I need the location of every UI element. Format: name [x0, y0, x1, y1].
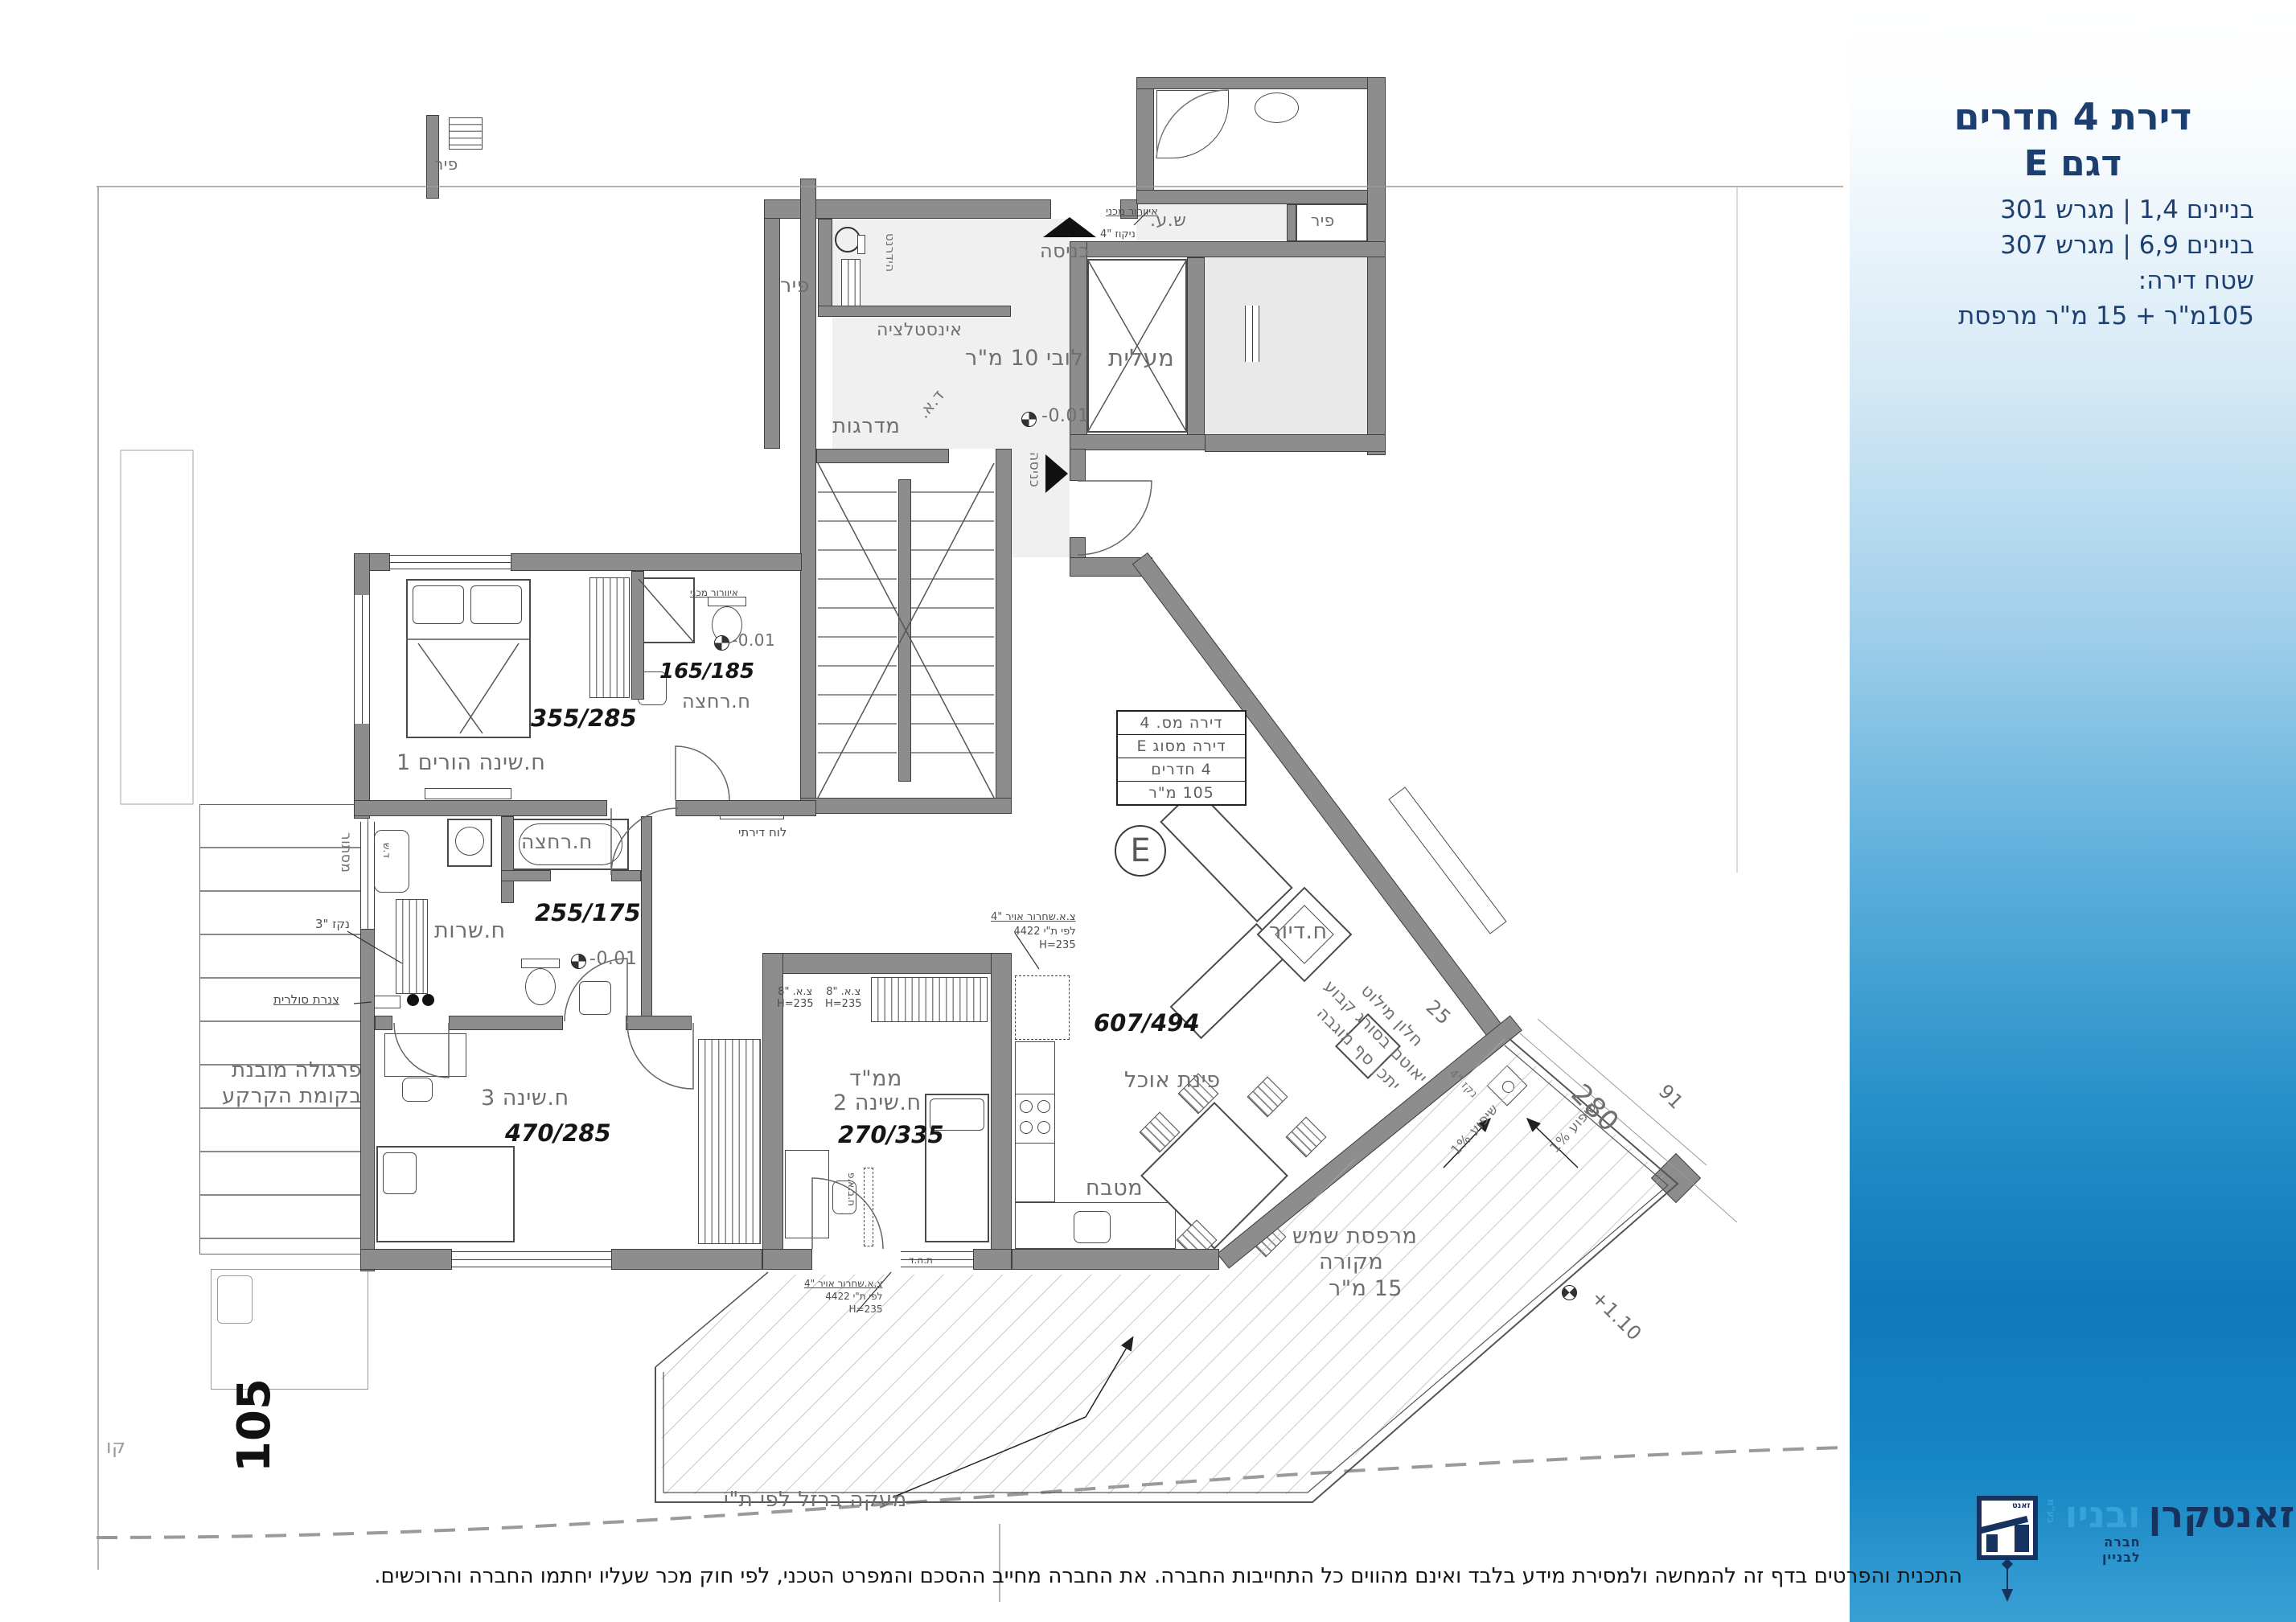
- burner: [1020, 1121, 1033, 1134]
- emblem-building-icon: [2015, 1525, 2029, 1552]
- emblem-building-icon: [1986, 1534, 1998, 1552]
- ac-vent-size: צ.א. "8: [826, 986, 860, 998]
- master-dim: 355/285: [531, 704, 637, 732]
- company-logo: זאנטקרן ובניו חברה לבניין בע"מ זאנט: [1985, 1496, 2294, 1602]
- level-symbol: [571, 954, 586, 969]
- drain-note: ניקוז "4: [1100, 228, 1136, 240]
- burner: [1020, 1100, 1033, 1113]
- pillow: [470, 585, 522, 624]
- logo-name-main: זאנטקרן: [2149, 1496, 2294, 1533]
- wall: [626, 1016, 692, 1030]
- wall: [898, 479, 911, 782]
- air-release-l1: צ.א.שחרור אויר "4: [804, 1278, 882, 1289]
- living-dim: 607/494: [1094, 1009, 1200, 1037]
- entrance-label: כניסה: [1040, 240, 1089, 262]
- burner: [1037, 1121, 1050, 1134]
- shaft-floor: [1205, 257, 1367, 434]
- pillow: [217, 1275, 253, 1324]
- pergola-label-2: בקומת הקרקע: [222, 1084, 362, 1108]
- bathroom-label: ח.רחצה: [682, 690, 750, 712]
- plumb-weight-icon: [2002, 1558, 2013, 1570]
- shaft-label: פיר: [434, 154, 458, 174]
- ladder: [396, 899, 428, 994]
- shower: [1156, 90, 1229, 158]
- toilet: [525, 968, 556, 1005]
- unit-info-table: דירה מס. 4 דירה מסוג E 4 חדרים 105 מ"ר: [1116, 710, 1247, 806]
- sink: [1255, 92, 1299, 123]
- balcony-label-3: 15 מ"ר: [1329, 1276, 1403, 1301]
- disclaimer-text: התכנית והפרטים בדף זה להמחשה ולמסירת מיד…: [44, 1564, 1962, 1588]
- bedroom2-label: ח.שינה 2: [833, 1090, 922, 1115]
- stairs-label: מדרגות: [832, 414, 900, 438]
- unit-letter-badge: E: [1115, 825, 1166, 877]
- drain3-label: נקז "3: [315, 917, 350, 931]
- blast-door: [864, 1168, 873, 1246]
- wall: [1070, 449, 1086, 481]
- bath2-dim: 255/175: [535, 899, 641, 926]
- wall: [631, 571, 644, 700]
- ac-vent-height: H=235: [825, 998, 861, 1010]
- wall: [1367, 77, 1386, 455]
- pillow: [413, 585, 464, 624]
- ac-vent-size: צ.א. "8: [778, 986, 812, 998]
- level-symbol: [714, 635, 729, 651]
- wall: [611, 870, 641, 881]
- kitchen-sink: [1074, 1211, 1111, 1243]
- wall: [676, 800, 816, 816]
- wall: [764, 199, 780, 449]
- panel-area-value: 105מ"ר + 15 מ"ר מרפסת: [1850, 298, 2296, 334]
- wall: [818, 306, 1011, 317]
- shaft-hatch: [449, 117, 483, 150]
- wall: [1070, 241, 1386, 257]
- closet: [698, 1039, 761, 1244]
- air-release-l3: H=235: [1039, 939, 1075, 951]
- kitchen-label: מטבח: [1086, 1176, 1143, 1201]
- level-110: +1.10: [1587, 1286, 1646, 1345]
- installation-label: אינסטלציה: [877, 320, 962, 340]
- sink: [579, 981, 611, 1015]
- info-row: 105 מ"ר: [1118, 782, 1245, 804]
- air-release-l2: לפי ת"י 4422: [825, 1291, 882, 1302]
- lobby-label: לובי 10 מ"ר: [965, 346, 1083, 371]
- wall-mamad: [762, 1249, 812, 1270]
- shaft-label: פיר: [1311, 211, 1335, 230]
- level-label: -0.01: [589, 949, 637, 969]
- info-panel: דירת 4 חדרים דגם E בניינים 1,4 | מגרש 30…: [1850, 0, 2296, 1622]
- window: [452, 1251, 611, 1267]
- apartment-panel-label: לוח דירתי: [738, 825, 787, 840]
- panel-title: דירת 4 חדרים: [1850, 95, 2296, 138]
- entrance-label: כניסה: [1026, 452, 1042, 487]
- ac-vent-label: צ.א. "8 H=235: [777, 986, 813, 1010]
- wall: [996, 449, 1012, 814]
- air-release-l2: לפי ת"י 4422: [1013, 926, 1075, 938]
- level-label: -0.01: [732, 630, 775, 650]
- entrance-arrow-icon: [1045, 454, 1068, 493]
- burner: [1037, 1100, 1050, 1113]
- solar-pipes-label: צנרת סולרית: [273, 992, 339, 1007]
- water-heater-label: ד.ש: [381, 843, 392, 858]
- hose-nozzle: [857, 235, 865, 254]
- panel-buildings-2: בניינים 6,9 | מגרש 307: [1850, 228, 2296, 263]
- mistor-label: מסתור: [338, 832, 354, 873]
- panel-area-title: שטח דירה:: [1850, 263, 2296, 298]
- air-release-label: צ.א.שחרור אויר "4 לפי ת"י 4422 H=235: [991, 910, 1076, 953]
- mamad-label: ממ"ד: [849, 1066, 902, 1091]
- bath1-dim: 165/185: [659, 659, 754, 684]
- pipe: [422, 994, 434, 1006]
- dining-chair: [1286, 1117, 1327, 1158]
- wall: [1070, 434, 1206, 450]
- dim-91: 91: [1654, 1080, 1688, 1114]
- dining-chair: [1247, 1077, 1288, 1118]
- wall: [511, 553, 802, 571]
- air-release-label: צ.א.שחרור אויר "4 לפי ת"י 4422 H=235: [804, 1277, 882, 1316]
- wall: [360, 929, 375, 1271]
- panel-model: דגם E: [1850, 143, 2296, 184]
- wall: [1205, 434, 1386, 452]
- plot-number: 105: [228, 1378, 281, 1472]
- elevator-label: מעלית: [1108, 344, 1174, 372]
- panel-buildings-1: בניינים 1,4 | מגרש 301: [1850, 192, 2296, 228]
- wall: [800, 798, 1012, 814]
- window: [390, 555, 511, 569]
- hose-reel-hose: [841, 259, 860, 309]
- wall-mamad: [973, 1249, 1012, 1270]
- wall: [501, 816, 514, 903]
- bedroom3-dim: 470/285: [505, 1119, 611, 1147]
- bathroom-label: ח.רחצה: [521, 830, 593, 853]
- wall: [818, 219, 832, 307]
- wall: [816, 449, 949, 463]
- air-release-l1: צ.א.שחרור אויר "4: [991, 911, 1076, 923]
- info-row: דירה מסוג E: [1118, 735, 1245, 758]
- pipe: [407, 994, 419, 1006]
- desk: [384, 1033, 466, 1077]
- water-heater: [374, 830, 409, 893]
- logo-emblem: זאנט: [1977, 1496, 2038, 1560]
- thd-label: ת.ה.ד: [909, 1254, 933, 1266]
- wall: [1136, 77, 1386, 89]
- pillow: [383, 1152, 417, 1194]
- window: [360, 822, 375, 929]
- plumb-line-icon: [2006, 1568, 2008, 1589]
- mech-vent-label: איוורור מכני: [690, 587, 738, 598]
- shaft-label: פיר: [780, 273, 810, 297]
- closet: [589, 577, 630, 698]
- master-bedroom-label: ח.שינה הורים 1: [396, 750, 545, 775]
- wall: [1287, 204, 1296, 241]
- railing-note: מעקה ברזל לפי ת"י: [724, 1488, 907, 1512]
- closet: [871, 977, 988, 1022]
- wall: [501, 870, 551, 881]
- wall: [1012, 1249, 1219, 1270]
- level-label: -0.01: [1041, 406, 1089, 426]
- hydrant-label: הידרנט: [883, 233, 897, 273]
- wall: [449, 1016, 563, 1030]
- solar-pipes-box: [372, 996, 400, 1008]
- air-release-l3: H=235: [848, 1304, 882, 1315]
- shower: [637, 577, 695, 643]
- level-symbol: [1021, 412, 1037, 427]
- service-room-label: ח.שרות: [434, 918, 506, 943]
- wall: [1187, 257, 1205, 450]
- blast-door-label: ח.ב.א.פ: [846, 1172, 857, 1206]
- toilet-tank: [521, 959, 560, 968]
- escape-note: חלון מילוט יאוטם בסורג קבוע יתכן סף מוגב…: [1256, 914, 1494, 1152]
- washing-machine-drum: [455, 827, 484, 856]
- column: [1651, 1153, 1701, 1203]
- desk: [785, 1150, 829, 1238]
- wall: [354, 800, 607, 816]
- entrance-arrow-icon: [1043, 217, 1096, 237]
- ac-vent-height: H=235: [777, 998, 813, 1010]
- wall: [360, 1249, 452, 1270]
- window: [354, 595, 370, 724]
- wall: [1136, 190, 1386, 204]
- info-row: 4 חדרים: [1118, 758, 1245, 782]
- service-shaft-label: ש.ע.: [1150, 211, 1186, 231]
- wall: [375, 1016, 392, 1030]
- wall-mamad: [991, 953, 1012, 1270]
- wall: [611, 1249, 762, 1270]
- dining-label: פינת אוכל: [1124, 1068, 1221, 1093]
- balcony-label-2: מקורה: [1319, 1250, 1383, 1275]
- bedroom3-label: ח.שינה 3: [481, 1086, 569, 1111]
- plumb-bob-icon: [2002, 1589, 2013, 1602]
- chair: [402, 1078, 433, 1102]
- sofa: [1160, 787, 1292, 922]
- wall: [1136, 77, 1154, 204]
- kav-label: קו: [106, 1435, 126, 1458]
- logo-tagline: חברה לבניין: [2065, 1534, 2141, 1565]
- dim-25: 25: [1422, 996, 1456, 1029]
- balcony-label-1: מרפסת שמש: [1292, 1224, 1417, 1249]
- level-symbol: [1559, 1282, 1580, 1304]
- wall: [641, 816, 652, 1019]
- logo-name-sub: ובניו: [2065, 1496, 2141, 1533]
- bedroom2-dim: 270/335: [838, 1121, 944, 1148]
- pergola-label-1: פרגולה מובנת: [232, 1058, 362, 1082]
- fridge: [1015, 975, 1070, 1040]
- logo-suffix: בע"מ: [2046, 1499, 2057, 1523]
- roof-drain-hole: [1502, 1081, 1514, 1093]
- logo-emblem-text: זאנט: [2012, 1501, 2031, 1510]
- info-row: דירה מס. 4: [1118, 712, 1245, 735]
- ac-vent-label: צ.א. "8 H=235: [825, 986, 861, 1010]
- wall-mamad: [762, 953, 1012, 974]
- window: [1245, 306, 1259, 362]
- tv-shelf: [425, 788, 511, 799]
